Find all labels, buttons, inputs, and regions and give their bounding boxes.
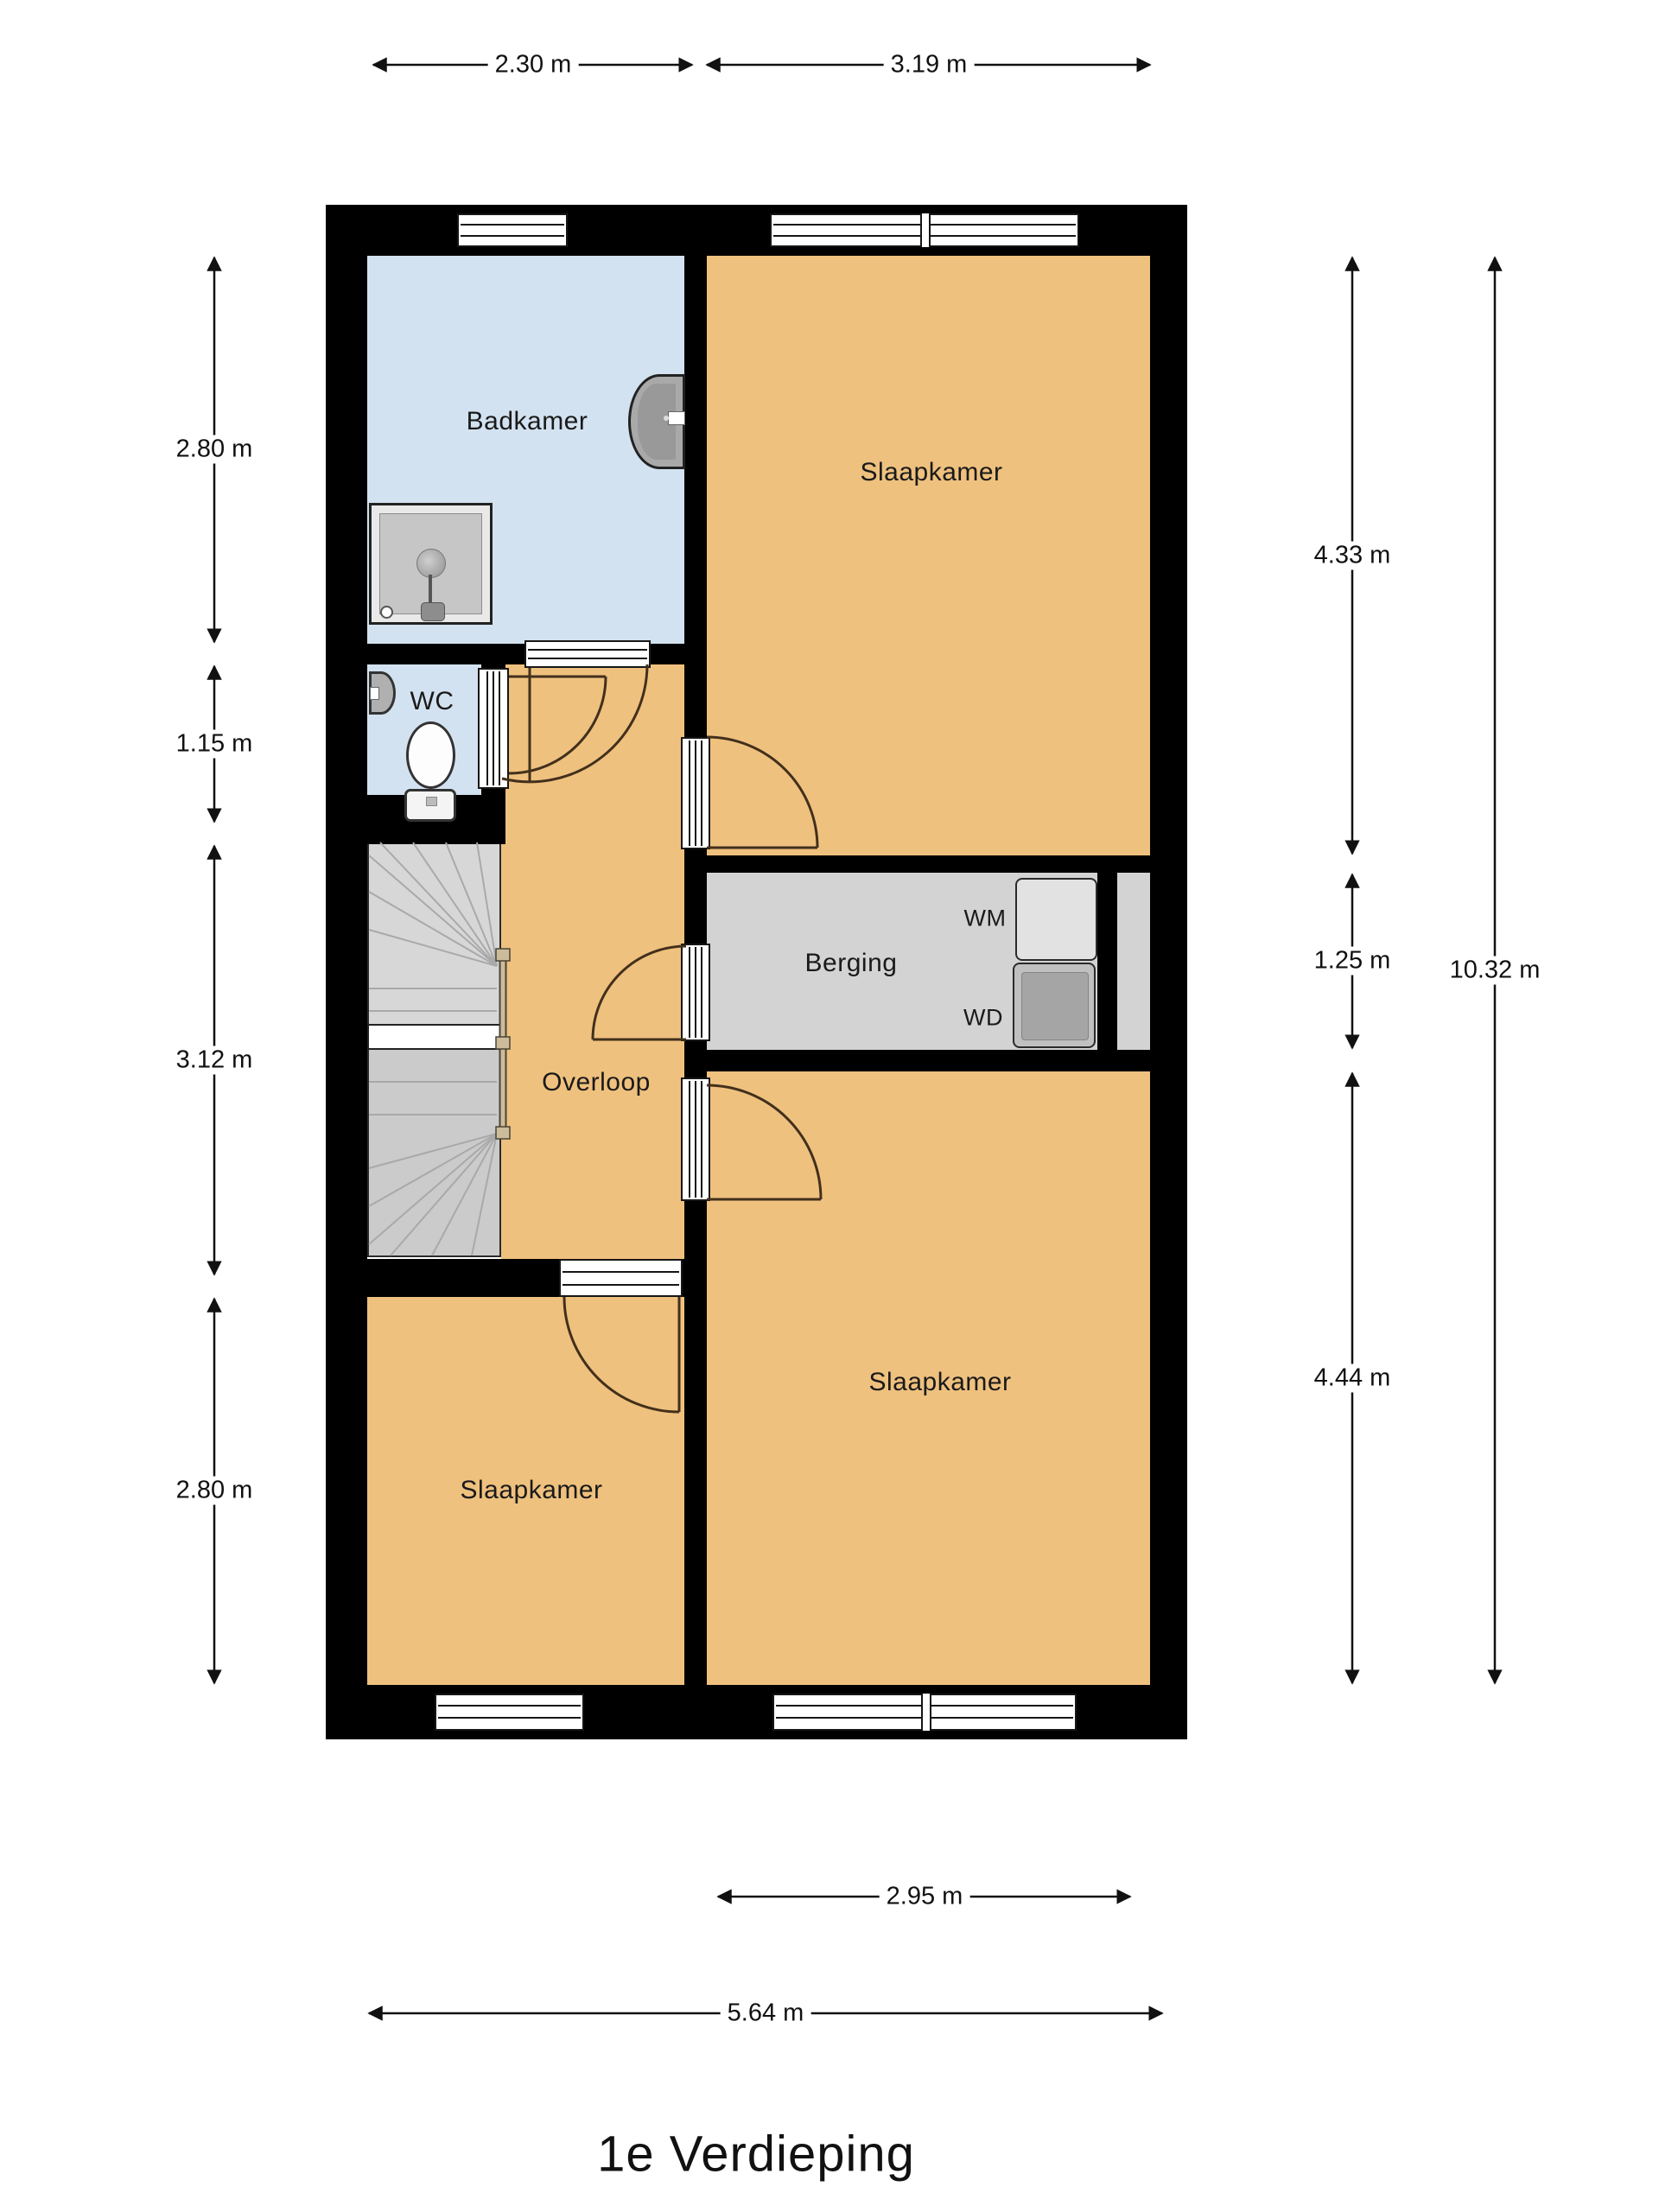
wall-exterior-left [326, 205, 367, 1739]
toilet-bowl [406, 721, 455, 789]
dim-bottom-room: 2.95 m [880, 1883, 970, 1911]
shower-head-icon [416, 549, 446, 578]
label-wm: WM [964, 906, 1007, 932]
wall-berging-top [707, 855, 1150, 873]
shower [369, 503, 493, 625]
dim-left-slaapkamer: 2.80 m [169, 1477, 260, 1505]
label-slaapkamer-top: Slaapkamer [860, 458, 1002, 487]
doorframe-slaapkamer-left [559, 1259, 683, 1297]
window-badkamer [457, 213, 568, 247]
dim-left-stairs: 3.12 m [169, 1046, 260, 1075]
label-berging: Berging [805, 949, 898, 978]
room-slaapkamer-top-floor [707, 256, 1150, 855]
label-badkamer: Badkamer [467, 407, 588, 436]
window-slaapkamer-top [770, 213, 1079, 247]
dim-right-berging: 1.25 m [1307, 947, 1398, 976]
label-overloop: Overloop [542, 1068, 651, 1097]
dim-right-slaapkamer-top: 4.33 m [1307, 542, 1398, 570]
dim-left-wc: 1.15 m [169, 730, 260, 759]
shower-drain-icon [380, 606, 393, 619]
dryer [1013, 963, 1096, 1048]
doorframe-badkamer [524, 640, 651, 668]
dim-right-slaapkamer-bottom: 4.44 m [1307, 1364, 1398, 1393]
doorframe-slaapkamer-top [681, 737, 710, 849]
floorplan-canvas: Badkamer WC Overloop Berging Slaapkamer … [0, 0, 1659, 2212]
label-wd: WD [963, 1005, 1003, 1032]
doorframe-berging [681, 944, 710, 1041]
stairs-landing-gap [367, 1024, 501, 1050]
faucet-icon [668, 411, 685, 425]
label-wc: WC [410, 687, 454, 716]
staircase [367, 841, 501, 1257]
room-overloop-floor [501, 664, 684, 1276]
window-slaapkamer-left [435, 1694, 584, 1731]
wall-bedrooms-divider [684, 1297, 707, 1685]
page-title: 1e Verdieping [597, 2126, 915, 2183]
dim-right-total: 10.32 m [1443, 957, 1548, 985]
toilet-tank [404, 789, 456, 822]
dim-top-right: 3.19 m [884, 51, 975, 79]
dim-top-left: 2.30 m [488, 51, 579, 79]
dim-left-badkamer: 2.80 m [169, 435, 260, 464]
doorframe-wc [478, 668, 509, 789]
wall-exterior-right [1150, 205, 1187, 1739]
wall-berging-bottom [707, 1050, 1150, 1071]
window-slaapkamer-right [772, 1694, 1077, 1731]
label-slaapkamer-left: Slaapkamer [460, 1476, 602, 1505]
doorframe-slaapkamer-right [681, 1077, 710, 1201]
stairs-lower-flight [369, 1050, 499, 1255]
dim-bottom-total: 5.64 m [721, 1999, 811, 2028]
label-slaapkamer-right: Slaapkamer [868, 1368, 1011, 1397]
bathroom-sink [628, 374, 685, 469]
washing-machine [1015, 878, 1097, 961]
wall-berging-divider [1097, 873, 1117, 1050]
